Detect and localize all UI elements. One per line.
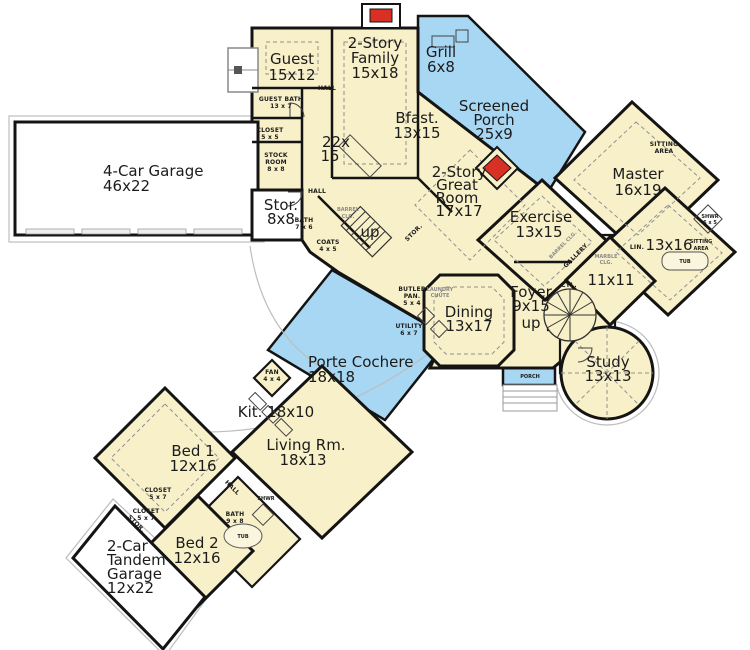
- great-room-dims: 17x17: [435, 202, 482, 220]
- stor-dims: 8x8: [267, 210, 295, 228]
- porte-cochere-dims: 18x18: [308, 368, 355, 386]
- living-dims: 18x13: [279, 451, 326, 469]
- dining-dims: 13x17: [445, 317, 492, 335]
- fan-dims: 4 x 4: [263, 376, 280, 383]
- butler-pantry-dims: 5 x 4: [403, 300, 420, 307]
- guest-bath-dims: 13 x 7: [270, 103, 292, 110]
- bath76-dims: 7 x 6: [295, 224, 312, 231]
- foyer-dims: 9x15: [512, 297, 550, 315]
- bath76-label: BATH: [295, 217, 314, 224]
- bfast-dims: 13x15: [393, 124, 440, 142]
- floor-plan-page: Guest 15x12 2-Story Family 15x18 Grill 6…: [0, 0, 750, 650]
- guest-bath-label: GUEST BATH: [259, 96, 303, 103]
- flex11-dims: 11x11: [587, 271, 634, 289]
- closet57a-label: CLOSET: [145, 487, 173, 494]
- bath-sitting-label-2: AREA: [693, 246, 708, 252]
- master-sitting-label-2: AREA: [655, 148, 674, 155]
- barrel-clg-label-1: BARREL: [337, 207, 360, 213]
- barrel-clg-label-2: CLG.: [342, 214, 355, 220]
- hall-mid-label: HALL: [308, 188, 326, 195]
- guest-dims: 15x12: [268, 66, 315, 84]
- bed2-dims: 12x16: [173, 549, 220, 567]
- garage4-dims: 46x22: [103, 177, 150, 195]
- closet55-label: CLOSET: [257, 127, 285, 134]
- cyl-label: CYL.: [561, 282, 577, 289]
- shower65-dims: 6 x 5: [703, 220, 717, 226]
- utility-dims: 6 x 7: [400, 330, 417, 337]
- marble-clg-label-2: CLG.: [600, 260, 613, 266]
- closet57b-label: CLOSET: [133, 508, 161, 515]
- closet55-dims: 5 x 5: [261, 134, 278, 141]
- front-porch-steps: [503, 385, 557, 411]
- linen-label: LIN.: [630, 244, 644, 251]
- study-dims: 13x13: [584, 367, 631, 385]
- kit-label: Kit. 18x10: [238, 403, 314, 421]
- screened-porch-dims: 25x9: [475, 125, 513, 143]
- hall-top-label: HALL: [318, 85, 336, 92]
- grill-dims: 6x8: [427, 58, 455, 76]
- stock-room-label-2: ROOM: [265, 159, 287, 166]
- bed2-shower-label: SHWR: [257, 496, 274, 502]
- kitchen22-label-2: 15: [320, 147, 339, 165]
- spiral-staircase: [544, 289, 596, 341]
- up-annotation-foyer: up: [521, 314, 540, 332]
- up-annotation-back: up: [360, 223, 379, 241]
- master-sitting-label-1: SITTING: [650, 141, 678, 148]
- floor-plan-canvas: Guest 15x12 2-Story Family 15x18 Grill 6…: [0, 0, 750, 650]
- butler-pantry-label-1: BUTLER: [398, 286, 425, 293]
- coats-dims: 4 x 5: [319, 246, 336, 253]
- bath-sitting-label-1: SITTING: [690, 239, 713, 245]
- garage2-dims: 12x22: [107, 579, 154, 597]
- fan-label: FAN: [265, 369, 279, 376]
- exercise-dims: 13x15: [515, 223, 562, 241]
- closet57b-dims: 5 x 7: [137, 515, 154, 522]
- family-dims: 15x18: [351, 64, 398, 82]
- bath98-label: BATH: [226, 511, 245, 518]
- stock-room-dims: 8 x 8: [267, 166, 284, 173]
- bath98-dims: 9 x 8: [226, 518, 243, 525]
- bed2-tub-label: TUB: [237, 534, 248, 540]
- master-tub-label: TUB: [679, 259, 690, 265]
- mbath-dims: 13x16: [645, 236, 692, 254]
- laundry-chute-label-2: CHUTE: [431, 293, 450, 299]
- closet57a-dims: 5 x 7: [149, 494, 166, 501]
- family-firebox: [370, 9, 392, 22]
- utility-label: UTILITY: [395, 323, 423, 330]
- bed1-dims: 12x16: [169, 457, 216, 475]
- stock-room-label-1: STOCK: [264, 152, 288, 159]
- master-dims: 16x19: [614, 181, 661, 199]
- front-porch-label: PORCH: [520, 374, 540, 380]
- coats-label: COATS: [317, 239, 340, 246]
- butler-pantry-label-2: PAN.: [404, 293, 421, 300]
